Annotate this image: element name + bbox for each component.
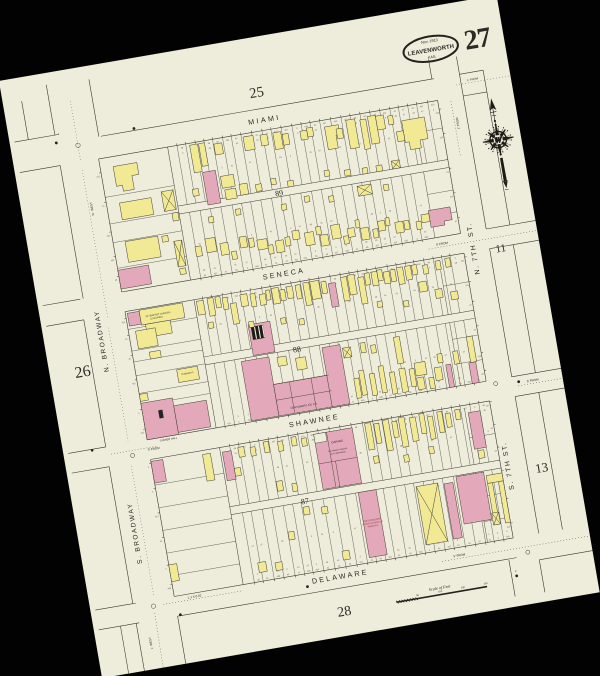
svg-text:28: 28 [336, 604, 352, 621]
svg-text:26: 26 [73, 363, 92, 382]
svg-text:11: 11 [495, 242, 507, 256]
svg-text:87: 87 [300, 496, 309, 506]
svg-text:25: 25 [248, 84, 265, 102]
svg-text:89: 89 [274, 188, 283, 198]
svg-text:88: 88 [292, 344, 301, 354]
svg-text:13: 13 [534, 459, 549, 476]
